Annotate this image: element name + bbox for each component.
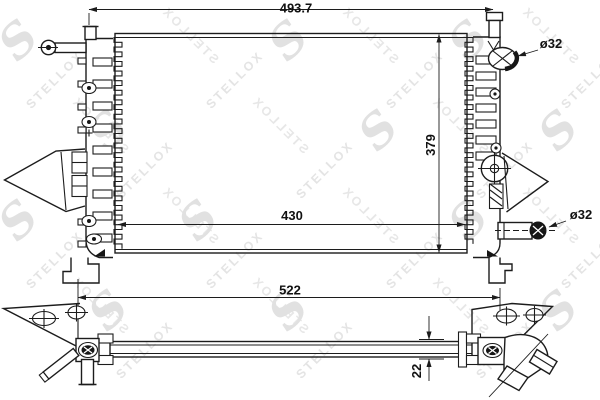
core-fin-edge-right	[465, 38, 473, 244]
bleed-pipe	[83, 27, 99, 40]
inlet-diameter-label: ø32	[540, 36, 562, 51]
callout-outlet-diameter: ø32	[549, 207, 592, 227]
right-tank: ø32	[473, 13, 592, 284]
filler-cap	[489, 48, 517, 70]
dim-core-height: 379	[423, 35, 439, 253]
outlet-diameter-label: ø32	[570, 207, 592, 222]
dim-overall-width: 493.7	[89, 1, 493, 26]
lower-hose-stub	[43, 349, 79, 380]
dim-core-thickness-label: 22	[409, 364, 424, 378]
left-tank	[5, 27, 114, 284]
dim-core-width: 430	[118, 208, 465, 225]
inlet-pipe	[38, 40, 86, 54]
drawing-canvas: 493.7	[0, 0, 600, 400]
dim-overall-width-label: 493.7	[280, 1, 313, 16]
dim-core-width-label: 430	[281, 208, 303, 223]
dim-core-thickness: 22	[409, 316, 444, 381]
outlet-pipe-side	[495, 222, 557, 240]
callout-inlet-diameter: ø32	[518, 36, 562, 56]
dim-overall-length-label: 522	[279, 283, 301, 298]
front-view: 493.7	[5, 1, 593, 284]
left-end-fitting	[39, 334, 113, 385]
bottom-view: 522	[4, 279, 558, 397]
right-end-fitting	[459, 332, 558, 397]
radiator-technical-drawing: STELLOX STELLOX STELLOX STELLOX STELLOX …	[0, 0, 600, 400]
right-foot-bracket	[489, 258, 512, 284]
core-slab	[110, 342, 472, 358]
dim-overall-length: 522	[78, 279, 500, 310]
left-foot-bracket	[63, 258, 99, 284]
dim-core-height-label: 379	[423, 134, 438, 156]
